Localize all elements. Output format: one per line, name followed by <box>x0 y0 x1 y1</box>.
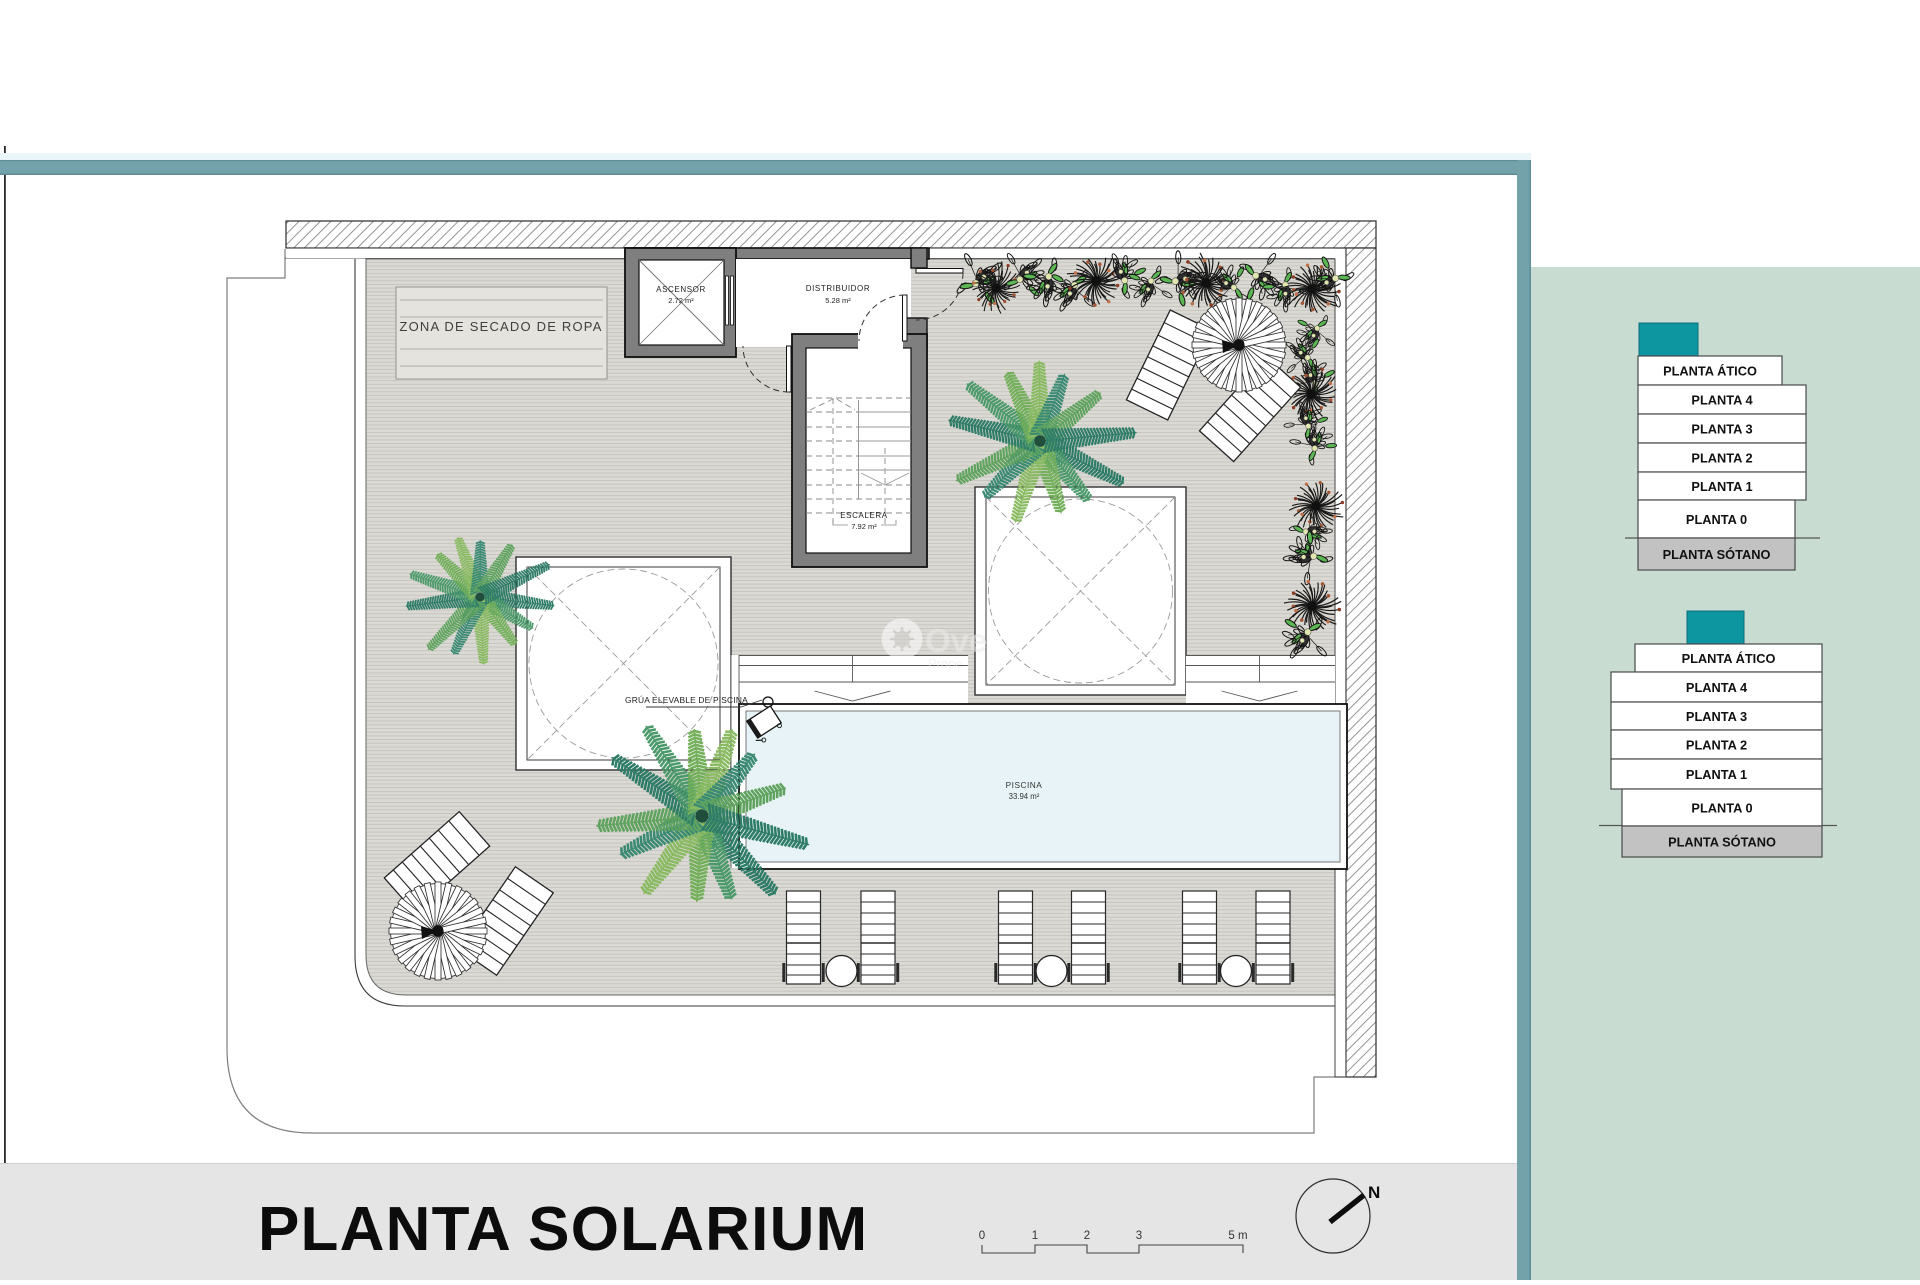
svg-text:PLANTA SÓTANO: PLANTA SÓTANO <box>1668 835 1776 850</box>
svg-text:PLANTA SOLARIUM: PLANTA SOLARIUM <box>258 1195 868 1264</box>
svg-text:PISCINA: PISCINA <box>1006 780 1043 790</box>
svg-text:ASCENSOR: ASCENSOR <box>656 285 706 294</box>
svg-text:PLANTA 2: PLANTA 2 <box>1691 451 1752 466</box>
svg-text:DISTRIBUIDOR: DISTRIBUIDOR <box>806 284 871 293</box>
svg-text:1: 1 <box>1032 1230 1038 1242</box>
svg-text:ZONA DE SECADO DE ROPA: ZONA DE SECADO DE ROPA <box>399 319 602 334</box>
svg-text:2: 2 <box>1084 1230 1090 1242</box>
svg-text:PLANTA 0: PLANTA 0 <box>1686 512 1747 527</box>
svg-text:PLANTA 2: PLANTA 2 <box>1686 738 1747 753</box>
svg-text:7.92 m²: 7.92 m² <box>851 522 877 531</box>
svg-text:PLANTA 0: PLANTA 0 <box>1691 801 1752 816</box>
svg-text:PLANTA 4: PLANTA 4 <box>1691 393 1753 408</box>
svg-text:Ove: Ove <box>925 622 987 659</box>
svg-text:3: 3 <box>1136 1230 1142 1242</box>
svg-text:PLANTA SÓTANO: PLANTA SÓTANO <box>1663 547 1771 562</box>
svg-text:PLANTA 4: PLANTA 4 <box>1686 680 1748 695</box>
svg-text:2.72 m²: 2.72 m² <box>668 296 694 305</box>
svg-text:PLANTA 1: PLANTA 1 <box>1686 767 1747 782</box>
svg-text:PLANTA 3: PLANTA 3 <box>1686 709 1747 724</box>
svg-text:PLANTA ÁTICO: PLANTA ÁTICO <box>1682 651 1776 666</box>
svg-text:ESCALERA: ESCALERA <box>840 511 888 520</box>
svg-text:GRÚA ELEVABLE DE PISCINA: GRÚA ELEVABLE DE PISCINA <box>625 695 748 705</box>
svg-text:5.28 m²: 5.28 m² <box>825 296 851 305</box>
svg-text:PLANTA ÁTICO: PLANTA ÁTICO <box>1663 364 1757 379</box>
svg-text:N: N <box>1368 1183 1380 1202</box>
svg-text:5 m: 5 m <box>1228 1230 1247 1242</box>
svg-text:0: 0 <box>979 1230 985 1242</box>
svg-text:PLANTA 3: PLANTA 3 <box>1691 422 1752 437</box>
svg-text:PLANTA 1: PLANTA 1 <box>1691 479 1752 494</box>
svg-text:Prope: Prope <box>928 656 963 671</box>
svg-text:33.94 m²: 33.94 m² <box>1009 792 1040 801</box>
